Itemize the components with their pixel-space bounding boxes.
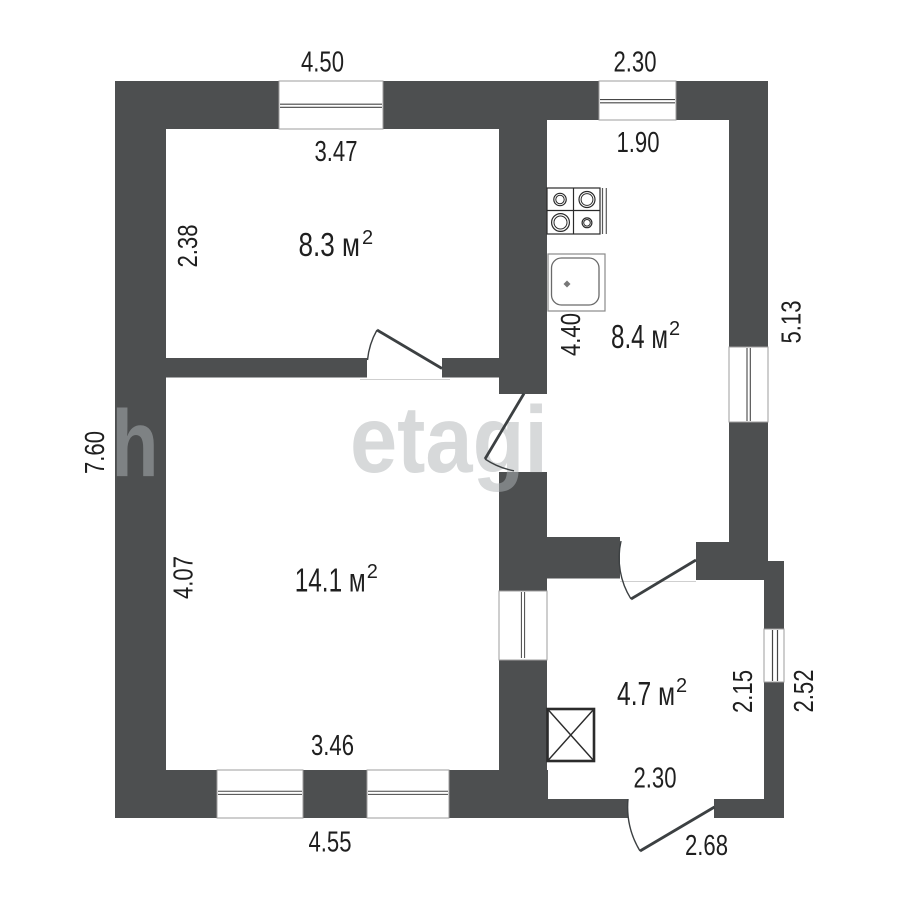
svg-text:1.90: 1.90: [617, 127, 660, 159]
svg-text:4.7 м: 4.7 м: [617, 675, 675, 712]
svg-text:2.52: 2.52: [788, 670, 819, 713]
svg-text:7.60: 7.60: [79, 431, 110, 474]
svg-text:4.07: 4.07: [168, 556, 199, 599]
svg-text:2: 2: [676, 675, 687, 697]
svg-text:8.4 м: 8.4 м: [611, 318, 668, 355]
svg-text:4.50: 4.50: [301, 47, 344, 79]
svg-text:4.55: 4.55: [309, 827, 352, 859]
svg-text:2: 2: [669, 318, 680, 340]
svg-text:2: 2: [362, 227, 373, 249]
svg-text:2.15: 2.15: [727, 670, 758, 713]
svg-text:2.30: 2.30: [614, 47, 657, 79]
svg-text:5.13: 5.13: [776, 301, 807, 344]
svg-text:2.30: 2.30: [634, 763, 677, 795]
svg-text:14.1 м: 14.1 м: [295, 561, 366, 598]
svg-text:8.3 м: 8.3 м: [299, 226, 361, 263]
svg-text:3.46: 3.46: [311, 730, 354, 762]
svg-text:3.47: 3.47: [315, 136, 358, 168]
svg-text:2: 2: [367, 561, 378, 583]
svg-text:2.68: 2.68: [685, 830, 728, 862]
svg-text:h: h: [112, 391, 159, 497]
svg-text:2.38: 2.38: [172, 225, 203, 268]
svg-text:4.40: 4.40: [555, 313, 586, 356]
